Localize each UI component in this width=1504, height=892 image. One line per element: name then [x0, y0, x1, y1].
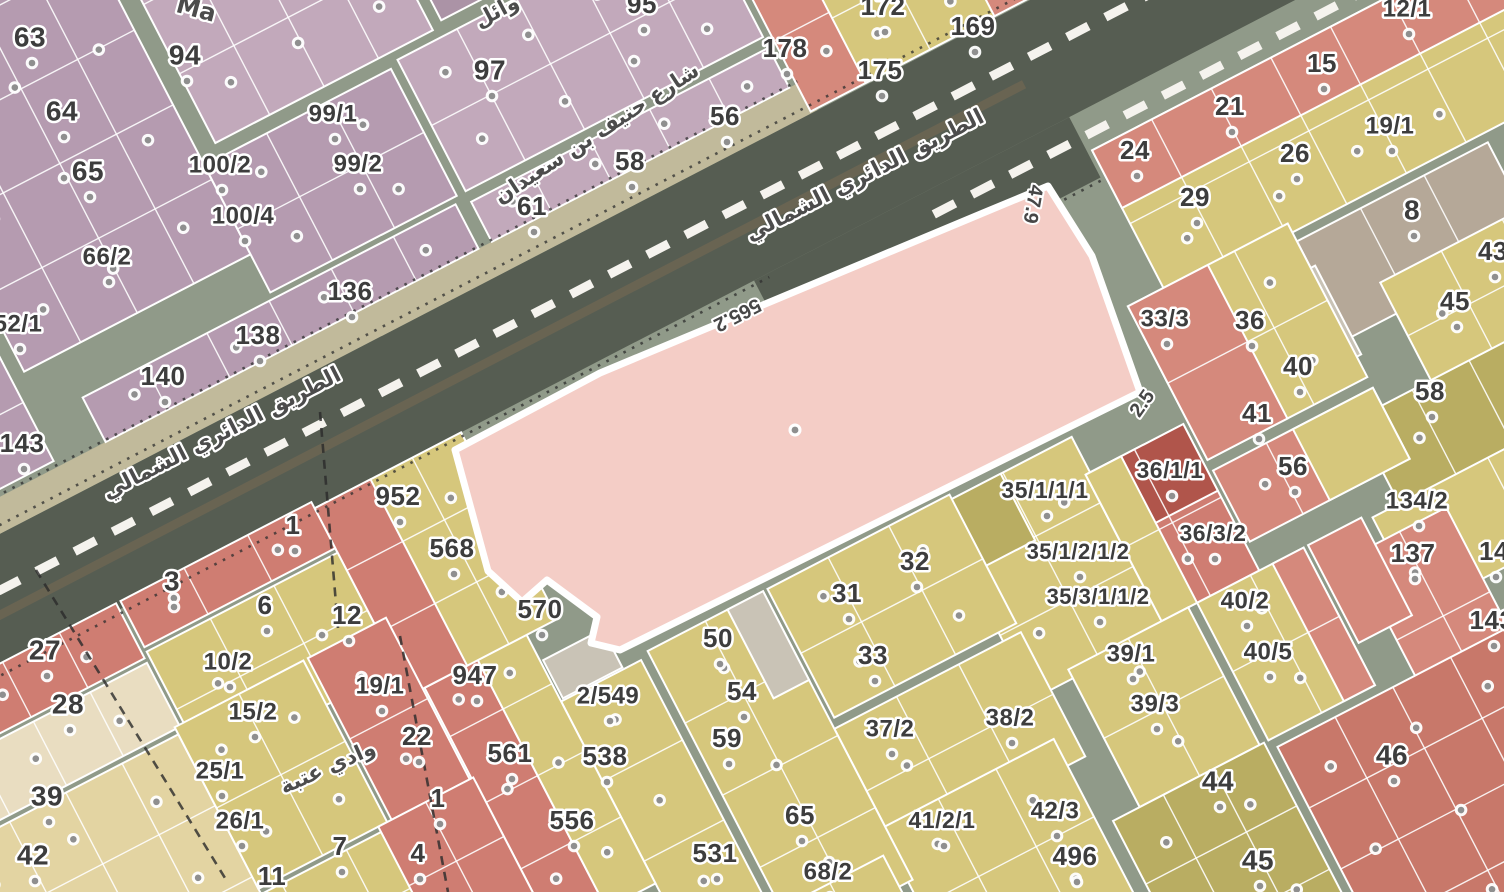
parcel-label-37-2[interactable]: 37/2 — [866, 715, 915, 742]
parcel-label-38-2[interactable]: 38/2 — [986, 704, 1035, 731]
parcel-label-3[interactable]: 3 — [164, 565, 180, 596]
parcel-label-40-2[interactable]: 40/2 — [1221, 587, 1270, 614]
parcel-marker-dot — [261, 625, 274, 638]
parcel-marker-dot — [346, 311, 359, 324]
parcel-marker-dot — [1488, 640, 1501, 653]
parcel-marker-dot — [486, 90, 499, 103]
parcel-label-56[interactable]: 56 — [710, 101, 740, 131]
parcel-label-65[interactable]: 65 — [785, 800, 815, 830]
parcel-label-33-3[interactable]: 33/3 — [1141, 305, 1190, 332]
parcel-label-140[interactable]: 140 — [141, 361, 186, 391]
parcel-marker-dot — [714, 658, 727, 671]
parcel-marker-dot — [168, 601, 181, 614]
parcel-label-25-1[interactable]: 25/1 — [196, 757, 245, 784]
parcel-marker-dot — [1413, 520, 1426, 533]
parcel-marker-dot — [216, 790, 229, 803]
parcel-label-45[interactable]: 45 — [1242, 844, 1274, 875]
parcel-label-39-3[interactable]: 39/3 — [1131, 690, 1180, 717]
parcel-marker-dot — [249, 731, 262, 744]
parcel-label-58[interactable]: 58 — [615, 146, 645, 176]
parcel-label-41[interactable]: 41 — [1242, 398, 1272, 428]
parcel-label-2-549[interactable]: 2/549 — [577, 682, 640, 709]
parcel-label-15-2[interactable]: 15/2 — [229, 698, 278, 725]
parcel-marker-dot — [1388, 775, 1401, 788]
parcel-label-33[interactable]: 33 — [858, 640, 888, 670]
parcel-marker-dot — [1254, 880, 1267, 892]
parcel-label-58[interactable]: 58 — [1415, 376, 1445, 406]
parcel-label-568[interactable]: 568 — [430, 533, 475, 563]
parcel-label-97[interactable]: 97 — [474, 54, 506, 85]
parcel-label-65[interactable]: 65 — [72, 155, 104, 186]
parcel-marker-dot — [289, 545, 302, 558]
parcel-marker-dot — [159, 396, 172, 409]
parcel-label-19-1[interactable]: 19/1 — [356, 672, 405, 699]
parcel-marker-dot — [1131, 170, 1144, 183]
parcel-label-31[interactable]: 31 — [832, 578, 862, 608]
parcel-marker-dot — [711, 873, 724, 886]
parcel-label-63[interactable]: 63 — [14, 21, 46, 52]
parcel-label-35-1-1-1[interactable]: 35/1/1/1 — [1001, 477, 1088, 503]
parcel-label-42[interactable]: 42 — [17, 839, 49, 870]
parcel-label-4[interactable]: 4 — [411, 838, 426, 868]
parcel-marker-dot — [448, 568, 461, 581]
parcel-marker-dot — [796, 835, 809, 848]
parcel-label-99-1[interactable]: 99/1 — [309, 100, 358, 127]
parcel-marker-dot — [1041, 510, 1054, 523]
parcel-label-42-3[interactable]: 42/3 — [1031, 797, 1080, 824]
parcel-marker-dot — [43, 816, 56, 829]
parcel-label-15[interactable]: 15 — [1307, 48, 1337, 78]
parcel-marker-dot — [911, 581, 924, 594]
parcel-label-29[interactable]: 29 — [1180, 182, 1210, 212]
parcel-marker-dot — [1214, 801, 1227, 814]
parcel-marker-dot — [938, 840, 951, 853]
parcel-marker-dot — [181, 75, 194, 88]
parcel-marker-dot — [1006, 737, 1019, 750]
parcel-label-66-2[interactable]: 66/2 — [83, 243, 132, 270]
parcel-label-43[interactable]: 43 — [1478, 236, 1504, 266]
parcel-marker-dot — [336, 866, 349, 879]
parcel-marker-dot — [1489, 271, 1502, 284]
parcel-label-46[interactable]: 46 — [1376, 739, 1408, 770]
parcel-marker-dot — [1408, 230, 1421, 243]
parcel-label-136[interactable]: 136 — [328, 276, 373, 306]
parcel-label-496[interactable]: 496 — [1053, 841, 1098, 871]
parcel-marker-dot — [721, 136, 734, 149]
parcel-marker-dot — [1318, 83, 1331, 96]
parcel-label-7[interactable]: 7 — [333, 831, 348, 861]
parcel-label-561[interactable]: 561 — [488, 738, 533, 768]
parcel-label-538[interactable]: 538 — [583, 741, 628, 771]
parcel-marker-dot — [26, 57, 39, 70]
parcel-label-100-4[interactable]: 100/4 — [212, 202, 275, 229]
parcel-label-36[interactable]: 36 — [1235, 305, 1265, 335]
parcel-marker-dot — [604, 715, 617, 728]
parcel-marker-dot — [879, 26, 892, 39]
parcel-marker-dot — [84, 191, 97, 204]
parcel-label-14[interactable]: 14 — [1479, 536, 1504, 566]
parcel-marker-dot — [236, 840, 249, 853]
parcel-label-68-2[interactable]: 68/2 — [804, 858, 853, 885]
parcel-label-19-1[interactable]: 19/1 — [1366, 112, 1415, 139]
parcel-label-100-2[interactable]: 100/2 — [189, 151, 252, 178]
parcel-marker-dot — [1291, 173, 1304, 186]
parcel-label-94[interactable]: 94 — [169, 39, 201, 70]
parcel-marker-dot — [239, 235, 252, 248]
parcel-label-40[interactable]: 40 — [1283, 351, 1313, 381]
parcel-marker-dot — [434, 818, 447, 831]
parcel-label-947[interactable]: 947 — [453, 660, 498, 690]
parcel-label-1[interactable]: 1 — [286, 510, 301, 540]
parcel-marker-dot — [414, 873, 427, 886]
cadastral-map[interactable]: 6394959717216912/1178175156499/1562119/1… — [0, 0, 1504, 892]
parcel-marker-dot — [568, 840, 581, 853]
parcel-label-36-3-2[interactable]: 36/3/2 — [1180, 520, 1247, 546]
parcel-marker-dot — [876, 90, 889, 103]
parcel-marker-dot — [329, 133, 342, 146]
parcel-label-143[interactable]: 143 — [1470, 605, 1504, 635]
parcel-marker-dot — [376, 705, 389, 718]
parcel-marker-dot — [886, 748, 899, 761]
parcel-label-12-1[interactable]: 12/1 — [1383, 0, 1432, 22]
parcel-label-95[interactable]: 95 — [627, 0, 657, 19]
parcel-label-138[interactable]: 138 — [236, 320, 281, 350]
parcel-label-40-5[interactable]: 40/5 — [1244, 638, 1293, 665]
parcel-marker-dot — [413, 756, 426, 769]
parcel-marker-dot — [1246, 340, 1259, 353]
parcel-marker-dot — [354, 183, 367, 196]
parcel-marker-dot — [224, 681, 237, 694]
parcel-label-52-1[interactable]: 52/1 — [0, 310, 42, 337]
parcel-label-952[interactable]: 952 — [376, 481, 421, 511]
parcel-label-12[interactable]: 12 — [332, 600, 362, 630]
parcel-label-59[interactable]: 59 — [712, 723, 742, 753]
parcel-marker-dot — [1191, 217, 1204, 230]
parcel-label-27[interactable]: 27 — [29, 634, 61, 665]
map-canvas[interactable]: 6394959717216912/1178175156499/1562119/1… — [0, 0, 1504, 892]
parcel-marker-dot — [1241, 620, 1254, 633]
parcel-label-6[interactable]: 6 — [258, 590, 273, 620]
parcel-label-35-1-2-1-2[interactable]: 35/1/2/1/2 — [1027, 539, 1130, 564]
parcel-label-24[interactable]: 24 — [1120, 135, 1150, 165]
parcel-label-41-2-1[interactable]: 41/2/1 — [909, 807, 976, 833]
parcel-marker-dot — [1490, 571, 1503, 584]
parcel-label-531[interactable]: 531 — [693, 838, 738, 868]
parcel-label-36-1-1[interactable]: 36/1/1 — [1137, 457, 1204, 483]
parcel-label-178[interactable]: 178 — [763, 33, 808, 63]
parcel-marker-dot — [58, 131, 71, 144]
parcel-marker-dot — [1226, 126, 1239, 139]
parcel-label-99-2[interactable]: 99/2 — [334, 150, 383, 177]
parcel-marker-dot — [1166, 490, 1179, 503]
parcel-label-44[interactable]: 44 — [1202, 765, 1234, 796]
parcel-label-39-1[interactable]: 39/1 — [1107, 640, 1156, 667]
parcel-marker-dot — [1294, 386, 1307, 399]
parcel-marker-dot — [1151, 723, 1164, 736]
parcel-marker-dot — [1209, 553, 1222, 566]
parcel-marker-dot — [1289, 486, 1302, 499]
parcel-marker-dot — [536, 629, 549, 642]
parcel-label-21[interactable]: 21 — [1215, 91, 1245, 121]
parcel-marker-dot — [343, 635, 356, 648]
parcel-marker-dot — [1409, 573, 1422, 586]
parcel-marker-dot — [1127, 673, 1140, 686]
parcel-marker-dot — [394, 516, 407, 529]
parcel-label-137[interactable]: 137 — [1391, 538, 1436, 568]
parcel-marker-dot — [254, 355, 267, 368]
parcel-label-32[interactable]: 32 — [900, 546, 930, 576]
parcel-marker-dot — [103, 276, 116, 289]
parcel-marker-dot — [1161, 338, 1174, 351]
parcel-label-28[interactable]: 28 — [52, 688, 84, 719]
parcel-label-143[interactable]: 143 — [0, 428, 44, 458]
parcel-marker-dot — [1074, 571, 1087, 584]
parcel-label-11[interactable]: 11 — [258, 861, 287, 891]
parcel-label-8[interactable]: 8 — [1404, 194, 1420, 225]
parcel-label-570[interactable]: 570 — [518, 594, 563, 624]
parcel-label-56[interactable]: 56 — [1278, 451, 1308, 481]
parcel-marker-dot — [1451, 321, 1464, 334]
parcel-marker-dot — [41, 670, 54, 683]
parcel-label-50[interactable]: 50 — [703, 623, 733, 653]
parcel-label-22[interactable]: 22 — [402, 721, 432, 751]
parcel-label-556[interactable]: 556 — [550, 805, 595, 835]
parcel-label-45[interactable]: 45 — [1440, 286, 1470, 316]
parcel-marker-dot — [626, 181, 639, 194]
parcel-label-1[interactable]: 1 — [431, 783, 446, 813]
parcel-label-134-2[interactable]: 134/2 — [1386, 487, 1449, 514]
parcel-marker-dot — [1386, 145, 1399, 158]
parcel-marker-dot — [18, 463, 31, 476]
parcel-label-10-2[interactable]: 10/2 — [204, 648, 253, 675]
highlighted-parcel-marker-dot — [789, 424, 802, 437]
parcel-marker-dot — [869, 675, 882, 688]
parcel-marker-dot — [738, 711, 751, 724]
parcel-label-26-1[interactable]: 26/1 — [216, 807, 265, 834]
parcel-marker-dot — [723, 758, 736, 771]
parcel-marker-dot — [506, 773, 519, 786]
parcel-marker-dot — [1426, 411, 1439, 424]
parcel-marker-dot — [29, 875, 42, 888]
parcel-marker-dot — [528, 226, 541, 239]
parcel-marker-dot — [1403, 28, 1416, 41]
parcel-marker-dot — [216, 184, 229, 197]
parcel-marker-dot — [601, 776, 614, 789]
parcel-label-26[interactable]: 26 — [1280, 138, 1310, 168]
parcel-label-64[interactable]: 64 — [46, 95, 78, 126]
parcel-label-35-3-1-1-2[interactable]: 35/3/1/1/2 — [1047, 584, 1150, 609]
parcel-marker-dot — [1094, 616, 1107, 629]
parcel-label-172[interactable]: 172 — [861, 0, 906, 21]
parcel-label-169[interactable]: 169 — [951, 11, 996, 41]
parcel-marker-dot — [471, 695, 484, 708]
parcel-marker-dot — [843, 613, 856, 626]
parcel-marker-dot — [1071, 876, 1084, 889]
parcel-marker-dot — [969, 46, 982, 59]
parcel-label-54[interactable]: 54 — [727, 676, 757, 706]
parcel-marker-dot — [1264, 671, 1277, 684]
parcel-marker-dot — [638, 24, 651, 37]
parcel-marker-dot — [14, 343, 27, 356]
parcel-label-175[interactable]: 175 — [858, 55, 903, 85]
parcel-marker-dot — [64, 724, 77, 737]
parcel-marker-dot — [1253, 433, 1266, 446]
parcel-label-39[interactable]: 39 — [31, 780, 63, 811]
parcel-marker-dot — [781, 68, 794, 81]
